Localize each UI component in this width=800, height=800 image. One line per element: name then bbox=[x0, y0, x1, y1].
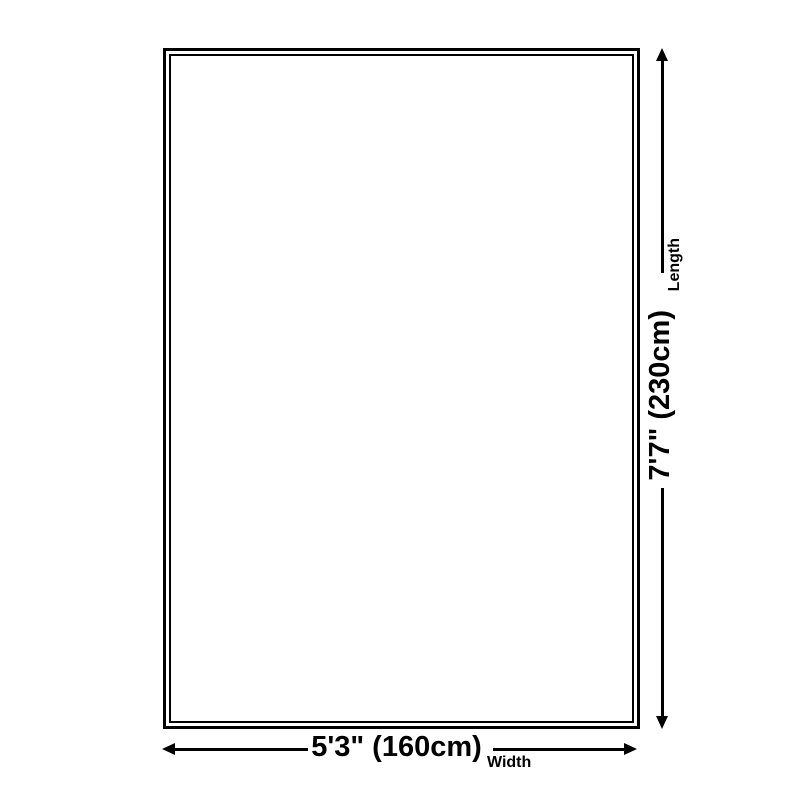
width-dimension-line-right bbox=[493, 748, 624, 751]
arrow-down-icon bbox=[656, 716, 668, 729]
width-dimension-line-left bbox=[175, 748, 308, 751]
length-value: 7'7" (230cm) bbox=[645, 310, 677, 481]
product-outline-inner-border bbox=[169, 54, 634, 723]
size-diagram: Length 7'7" (230cm) 5'3" (160cm) Width bbox=[0, 0, 800, 800]
width-value: 5'3" (160cm) bbox=[300, 732, 493, 764]
arrow-right-icon bbox=[624, 743, 637, 755]
arrow-left-icon bbox=[162, 743, 175, 755]
length-dimension-line-top bbox=[661, 59, 664, 273]
length-label: Length bbox=[666, 238, 684, 291]
width-label: Width bbox=[487, 754, 531, 772]
length-dimension-line-bottom bbox=[661, 488, 664, 716]
product-outline bbox=[163, 48, 640, 729]
